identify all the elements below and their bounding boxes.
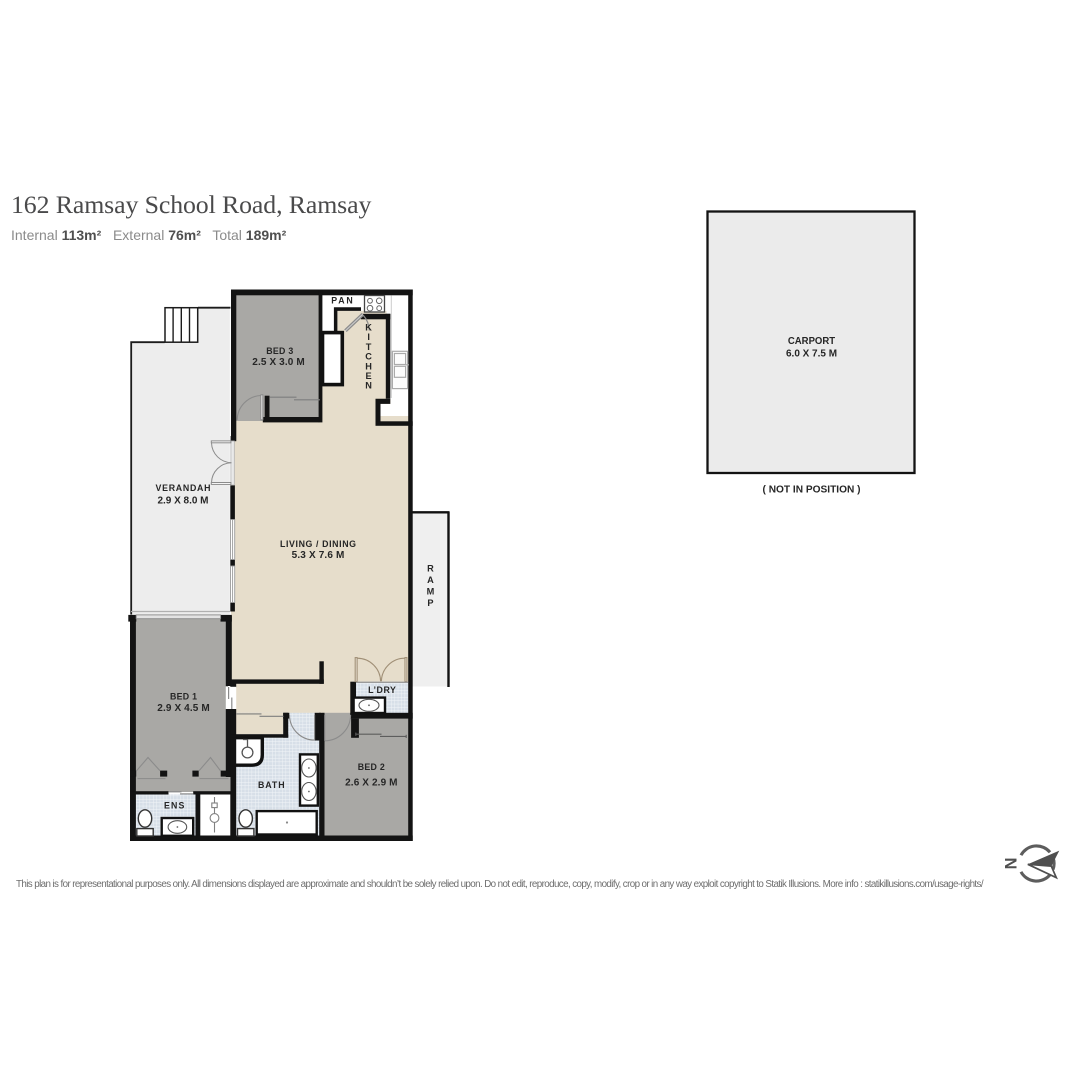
svg-text:N: N — [1001, 858, 1019, 870]
svg-text:5.3 X 7.6 M: 5.3 X 7.6 M — [292, 550, 345, 561]
svg-text:BED 1: BED 1 — [170, 692, 197, 702]
svg-text:ENS: ENS — [164, 801, 185, 811]
svg-text:2.9 X 4.5 M: 2.9 X 4.5 M — [157, 703, 209, 714]
svg-text:I: I — [367, 332, 370, 342]
svg-text:N: N — [365, 381, 372, 391]
svg-text:VERANDAH: VERANDAH — [156, 483, 211, 493]
svg-text:A: A — [427, 575, 434, 585]
svg-text:E: E — [366, 371, 372, 381]
svg-text:2.9 X 8.0 M: 2.9 X 8.0 M — [158, 495, 209, 506]
svg-text:PAN: PAN — [331, 295, 352, 305]
svg-text:M: M — [427, 587, 435, 597]
svg-text:LIVING / DINING: LIVING / DINING — [280, 539, 356, 549]
svg-text:BED 2: BED 2 — [358, 762, 385, 772]
svg-text:K: K — [365, 323, 372, 333]
svg-text:( NOT IN POSITION ): ( NOT IN POSITION ) — [763, 485, 861, 496]
svg-text:C: C — [365, 352, 372, 362]
svg-text:2.6 X 2.9 M: 2.6 X 2.9 M — [345, 777, 397, 788]
svg-text:CARPORT: CARPORT — [788, 336, 835, 347]
svg-text:6.0 X 7.5 M: 6.0 X 7.5 M — [786, 349, 837, 360]
svg-text:2.5 X 3.0 M: 2.5 X 3.0 M — [252, 357, 304, 368]
svg-text:T: T — [366, 342, 372, 352]
svg-text:H: H — [365, 361, 372, 371]
svg-text:L’DRY: L’DRY — [368, 685, 396, 695]
svg-text:BED 3: BED 3 — [266, 346, 293, 356]
svg-text:P: P — [427, 598, 433, 608]
svg-text:R: R — [427, 564, 434, 574]
svg-text:BATH: BATH — [258, 780, 285, 790]
